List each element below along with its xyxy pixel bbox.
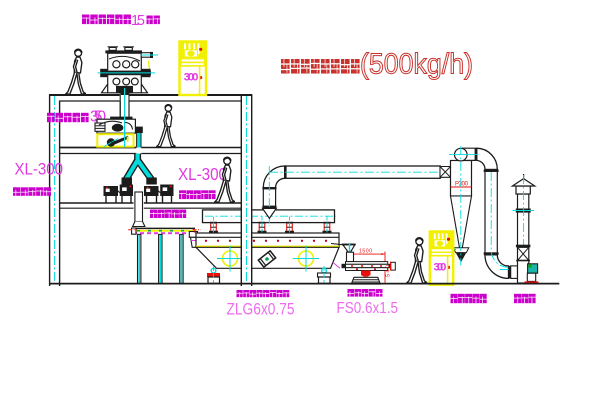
svg-text:540: 540: [385, 265, 391, 277]
svg-text:1500: 1500: [359, 249, 372, 255]
svg-text:XL-300: XL-300: [178, 164, 227, 184]
svg-text:300: 300: [434, 261, 447, 273]
svg-text:XL-300: XL-300: [15, 160, 64, 179]
svg-text:FS0.6x1.5: FS0.6x1.5: [337, 300, 399, 317]
svg-text:(500kg/h): (500kg/h): [360, 49, 473, 81]
svg-text:ZLG6x0.75: ZLG6x0.75: [227, 301, 295, 319]
svg-text:1.5: 1.5: [131, 13, 145, 29]
svg-text:300: 300: [184, 72, 199, 84]
